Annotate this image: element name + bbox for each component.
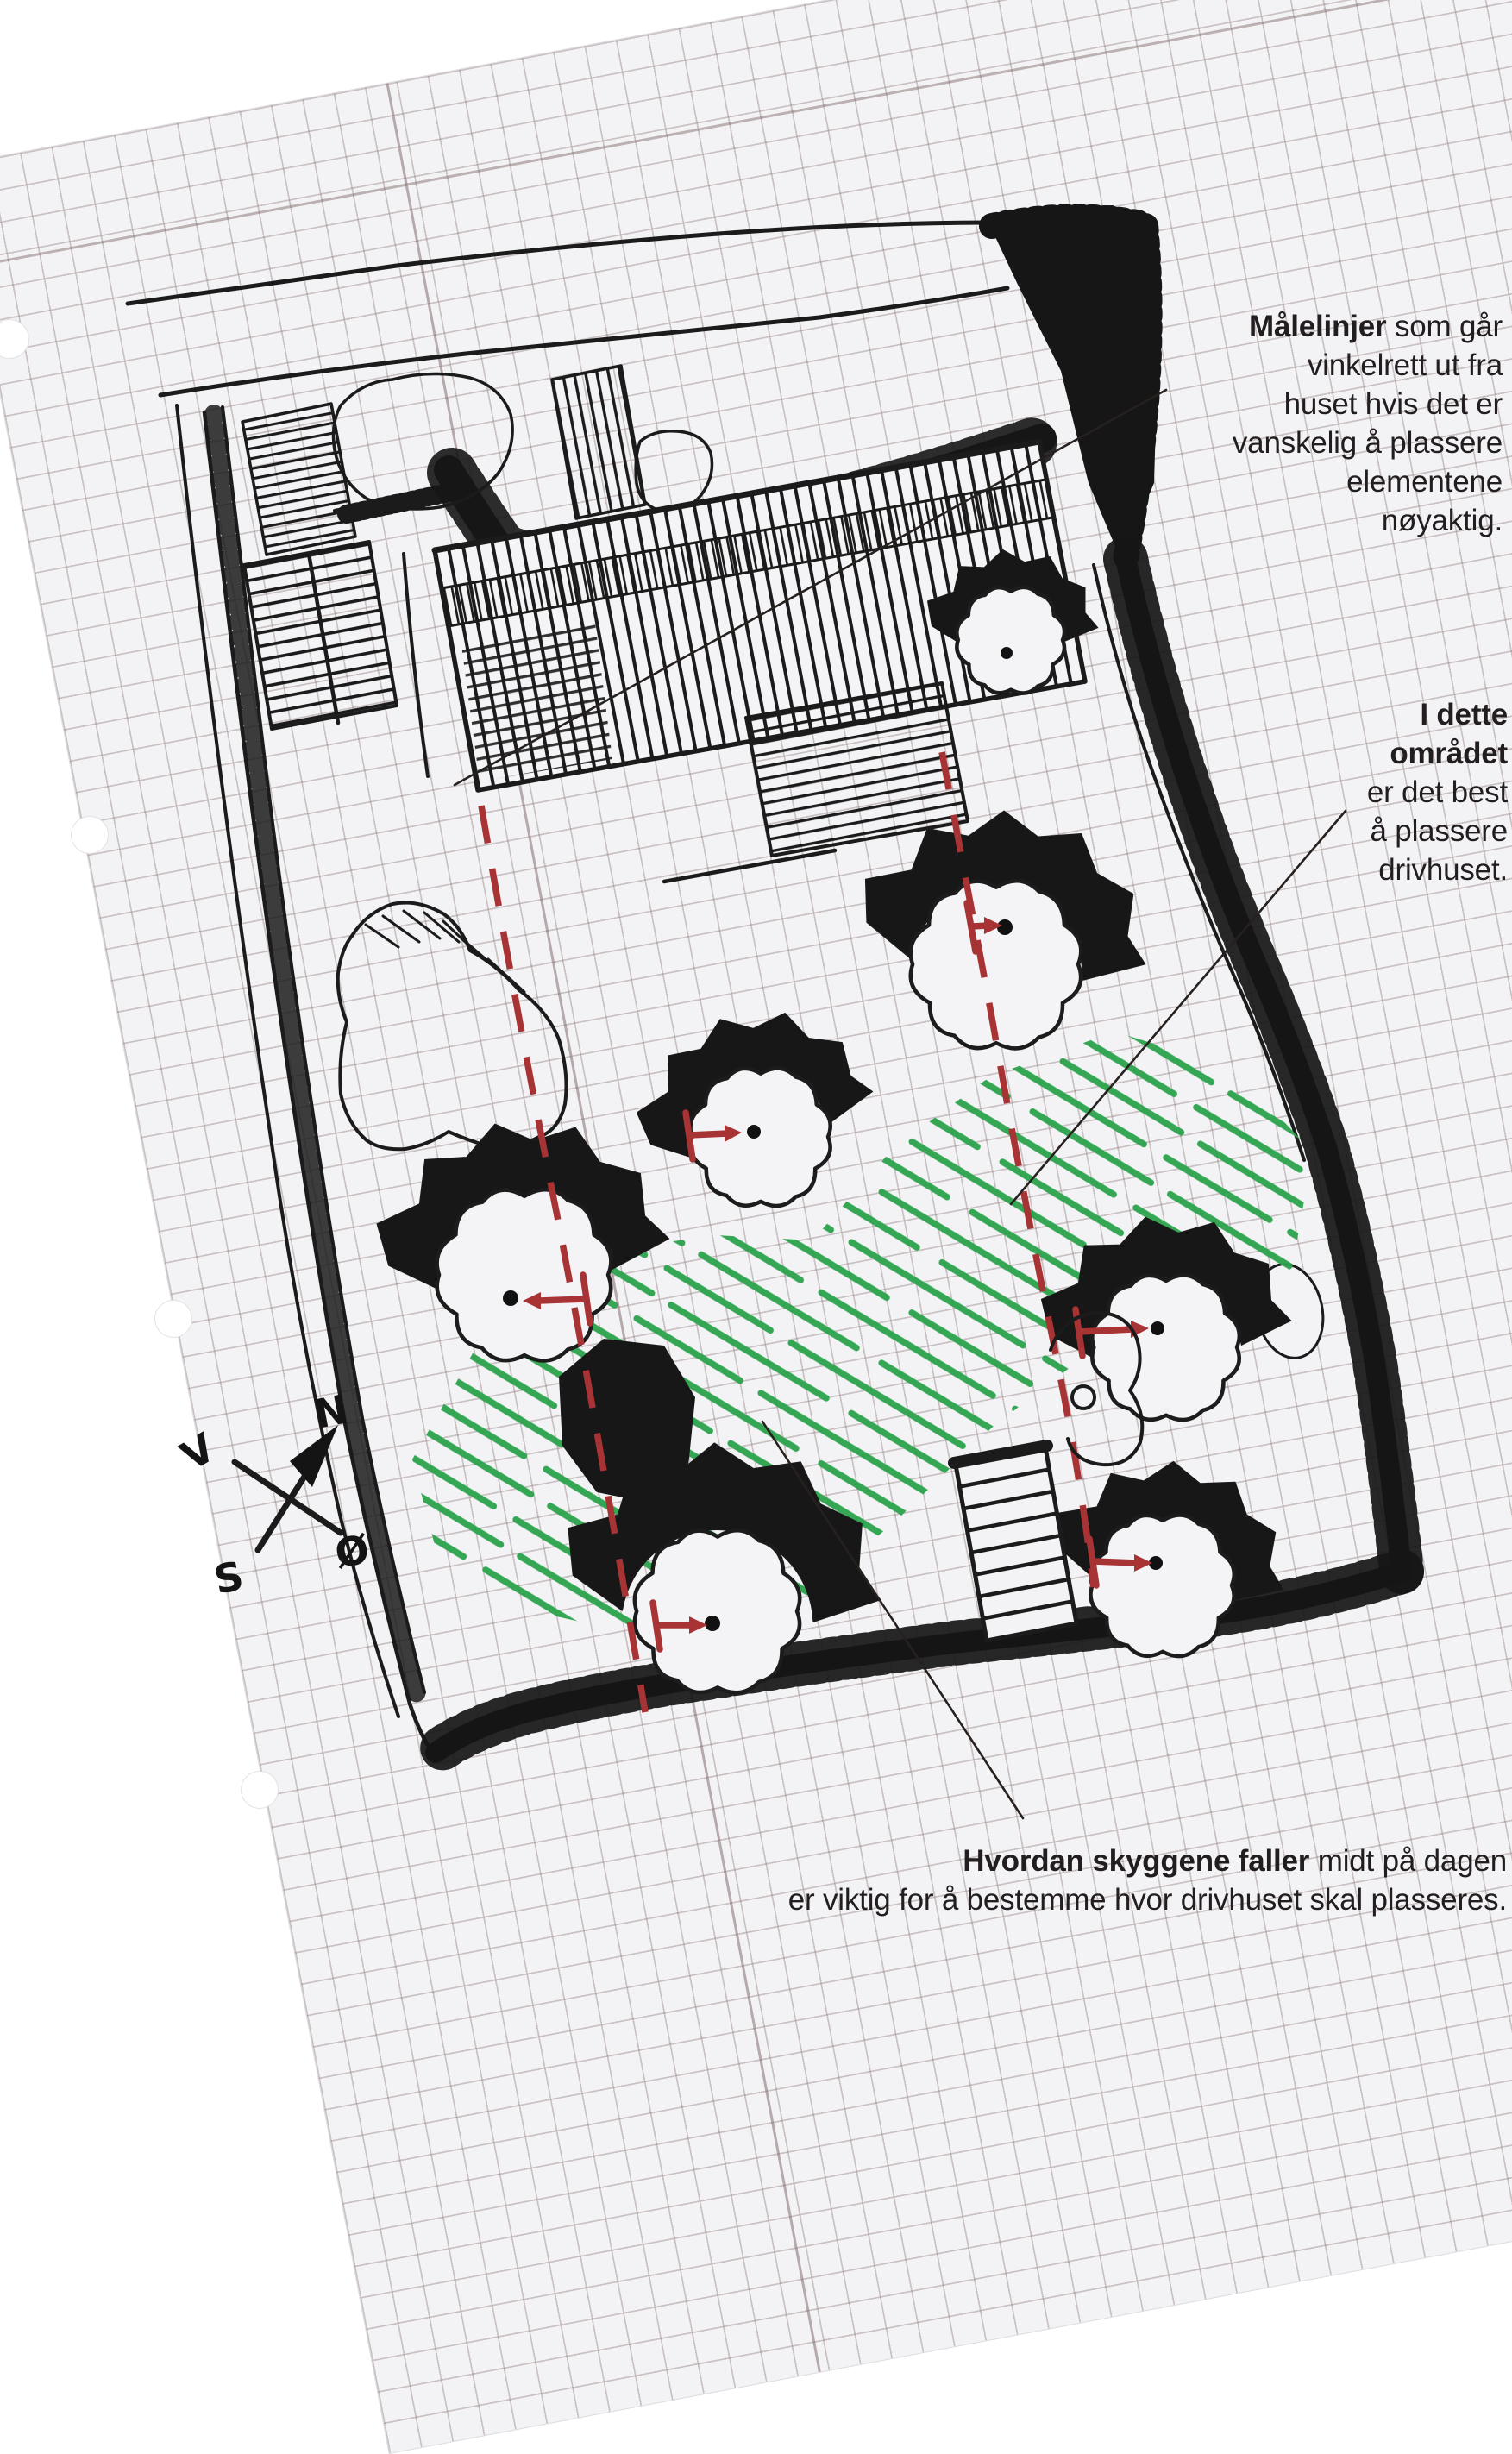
shed-top	[552, 366, 645, 518]
annotation-text-line: er viktig for å bestemme hvor drivhuset …	[788, 1880, 1507, 1919]
annotation-text-line: huset hvis det er	[1233, 385, 1503, 424]
annotation-text-line: vinkelrett ut fra	[1233, 346, 1503, 385]
tree-crown	[1092, 1275, 1239, 1420]
stone-circle	[1072, 1386, 1095, 1409]
annotation-text-line: å plassere	[1367, 812, 1508, 850]
bush-hatch	[366, 911, 524, 992]
compass-rose: N V S Ø	[173, 1385, 373, 1603]
annotation-text-line: Målelinjer som går	[1233, 307, 1503, 346]
tree-crown	[635, 1530, 800, 1692]
annotation-greenhouse-area: I dette området er det best å plassere d…	[1367, 695, 1508, 889]
bush-left-middle	[338, 903, 567, 1150]
patio-upper-band	[242, 404, 355, 555]
annotation-text-line: vanskelig å plassere	[1233, 424, 1503, 462]
annotation-text-line: området	[1367, 734, 1508, 773]
fence-line-outer	[128, 223, 994, 304]
annotation-measure-lines: Målelinjer som går vinkelrett ut fra hus…	[1233, 307, 1503, 540]
patio-stairs-block	[244, 542, 397, 729]
garden-plan-drawing: N V S Ø	[0, 0, 1512, 1969]
terrace-edge-line	[664, 850, 835, 882]
annotation-text-line: nøyaktig.	[1233, 501, 1503, 540]
annotation-text-line: Hvordan skyggene faller midt på dagen	[788, 1842, 1507, 1880]
house-deck-rows	[461, 623, 612, 781]
tree-crown	[957, 587, 1064, 694]
compass-label-south: S	[210, 1552, 248, 1603]
annotation-text-line: I dette	[1367, 695, 1508, 734]
garden-path-edge	[404, 554, 428, 776]
compass-label-west: V	[173, 1424, 223, 1480]
tree-crown	[1090, 1515, 1233, 1656]
annotation-text-line: elementene	[1233, 462, 1503, 501]
annotation-shadows: Hvordan skyggene faller midt på dagen er…	[788, 1842, 1507, 1919]
annotation-text-line: er det best	[1367, 773, 1508, 812]
annotation-text-line: drivhuset.	[1367, 850, 1508, 889]
